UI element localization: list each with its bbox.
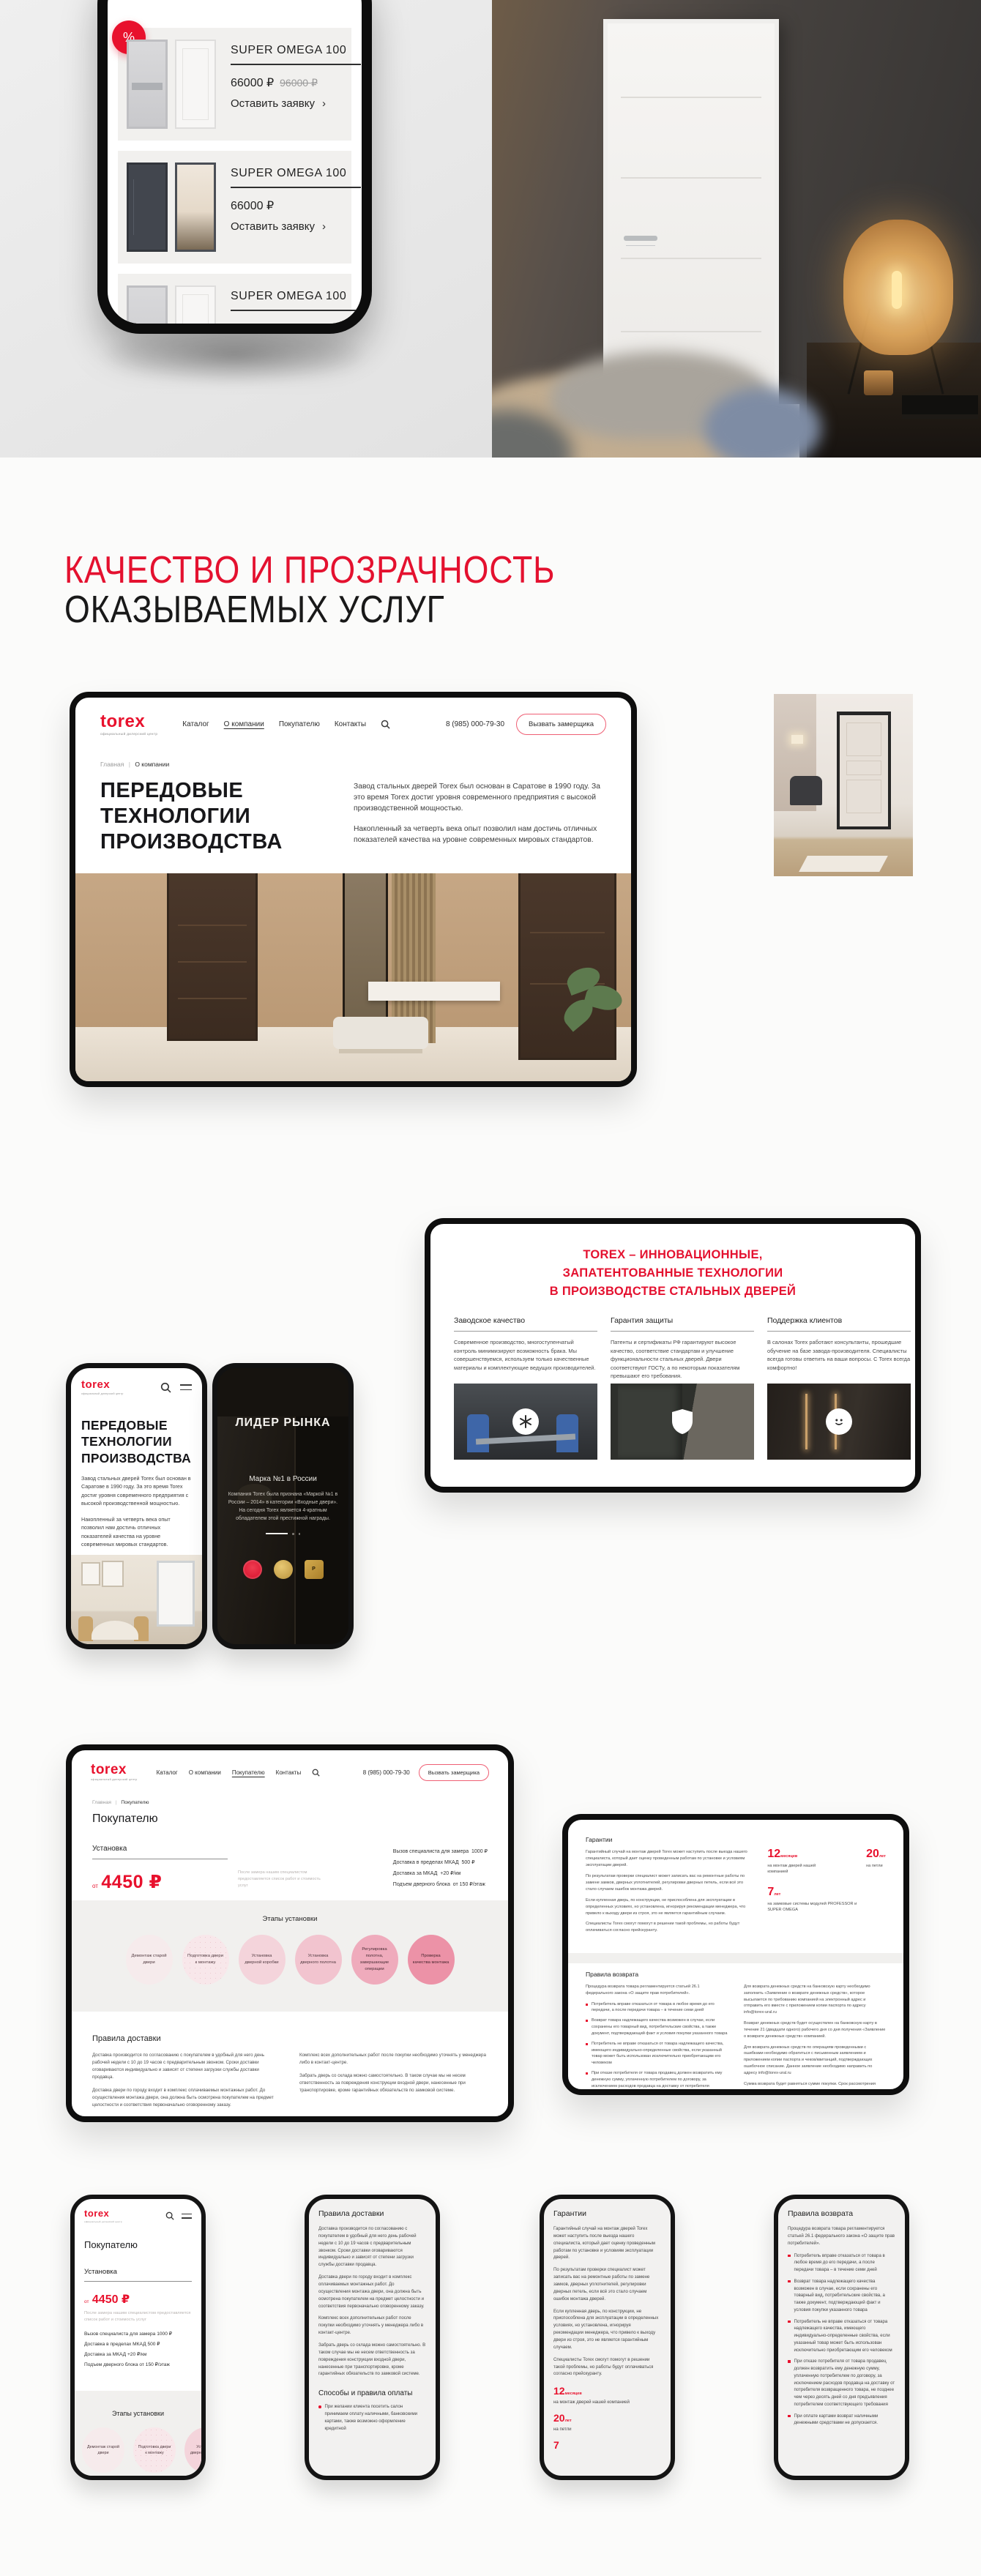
hamburger-icon[interactable] [180,1384,192,1390]
nav-item-contacts[interactable]: Контакты [335,720,366,728]
browser-mockup-warranty: Гарантии Гарантийный случай на монтаж дв… [562,1814,909,2095]
breadcrumb: Главная | О компании [100,761,606,768]
about-title: ПЕРЕДОВЫЕ ТЕХНОЛОГИИ ПРОИЗВОДСТВА [100,778,283,856]
warranty-paragraph: Если купленная дверь, по конструкции, не… [586,1897,748,1917]
phone-mockup-buyer: torex официальный дилерский центр Покупа… [70,2195,206,2480]
browser-mockup-buyer: torex официальный дилерский центр Катало… [66,1744,514,2122]
nav-item-buyer[interactable]: Покупателю [279,720,320,728]
column-heading: Заводское качество [454,1316,597,1325]
phone-mockup-leader: ЛИДЕР РЫНКА Марка №1 в России Компания T… [212,1363,354,1649]
nav-item-about[interactable]: О компании [189,1769,221,1776]
award-badges: Р [217,1560,348,1579]
returns-paragraph: Возврат денежных средств будет осуществл… [744,2020,886,2039]
fee-row: Доставка за МКАД +20 ₽/км [393,1868,488,1879]
fee-row: Подъем дверного блока от 150 ₽/этаж [84,2360,192,2370]
section-heading: КАЧЕСТВО И ПРОЗРАЧНОСТЬ ОКАЗЫВАЕМЫХ УСЛУ… [64,550,635,630]
step-circle-1: Демонтаж старой двери [126,1935,173,1985]
search-icon[interactable] [160,1382,171,1393]
search-icon[interactable] [312,1769,320,1777]
warranty-title: Гарантии [553,2209,661,2218]
product-images [127,163,220,252]
delivery-paragraph: Доставка двери по городу входит в компле… [318,2274,426,2310]
step-circle-3: Установка дверной коробки [239,1935,286,1985]
leader-subtitle: Марка №1 в России [217,1475,348,1483]
divider [454,1331,597,1332]
breadcrumb-current: Покупателю [121,1800,149,1805]
delivery-heading: Правила доставки [92,2034,488,2043]
product-cta[interactable]: Оставить заявку › [231,220,361,233]
logo-subtitle: официальный дилерский центр [100,732,157,736]
phone-mockup-returns: Правила возврата Процедура возврата това… [774,2195,909,2480]
lamp-bulb [892,271,902,309]
steps-section: Этапы установки Демонтаж старой двери По… [75,2391,201,2476]
factory-photo [454,1384,597,1460]
torex-logo[interactable]: torex официальный дилерский центр [81,1380,124,1395]
nav-item-buyer[interactable]: Покупателю [232,1769,265,1776]
asterisk-icon [512,1408,539,1435]
award-badge-mark1-icon [243,1560,262,1579]
breadcrumb-home[interactable]: Главная [100,761,124,768]
logo-subtitle: официальный дилерский центр [84,2220,122,2223]
console-shelf [368,982,500,1001]
returns-bullet: При отказе потребителя от товара продаве… [586,2070,728,2095]
steps-title: Этапы установки [75,2391,201,2417]
door-image-closed [127,40,168,129]
phone-about-paragraph-1: Завод стальных дверей Torex был основан … [81,1474,192,1508]
stat-20-years: 20лет на петли [553,2412,661,2432]
delivery-section: Правила доставки Доставка производится п… [92,2034,488,2115]
award-badge-100best-icon: Р [305,1560,324,1579]
delivery-title: Правила доставки [318,2209,426,2218]
returns-heading: Правила возврата [586,1971,886,1978]
payment-bullet: При желании клиента посетить салон прини… [318,2403,426,2432]
steps-section: Этапы установки Демонтаж старой двери По… [72,1900,508,2012]
bench [333,1017,428,1049]
bullet-square-icon [788,2321,791,2323]
entrance-door [837,712,891,829]
install-price: от 4450 ₽ [84,2292,192,2307]
returns-bullet: Потребитель вправе отказаться от товара … [586,2001,728,2015]
bullet-square-icon [788,2255,791,2258]
product-card: SUPER OMEGA 100 [118,274,351,324]
side-interior-photo [774,694,913,876]
divider [231,187,361,188]
logo-text: torex [100,714,157,730]
product-price: 66000 ₽ [231,200,274,212]
delivery-paragraph: Доставка двери по городу входит в компле… [92,2087,280,2109]
product-price: 66000 ₽ [231,77,274,89]
column-text: Современное производство, многоступенчат… [454,1338,597,1381]
header-phone[interactable]: 8 (985) 000-79-30 [446,720,504,728]
divider [92,1859,228,1859]
returns-paragraph: Для возврата денежных средств на банковс… [744,1984,886,2016]
smile-icon [826,1408,852,1435]
breadcrumb-current: О компании [135,761,169,768]
column-factory-quality: Заводское качество Современное производс… [454,1316,597,1460]
torex-logo[interactable]: torex официальный дилерский центр [100,714,157,736]
dining-table [92,1621,138,1640]
shield-icon [671,1408,693,1435]
door-image-closed [127,285,168,324]
white-door [157,1561,195,1627]
product-title: SUPER OMEGA 100 [231,167,361,180]
product-images [127,285,220,324]
phone-mockup-about: torex официальный дилерский центр ПЕРЕДО… [66,1363,207,1649]
hero-interior-photo [75,873,631,1081]
returns-intro: Процедура возврата товара регламентирует… [586,1984,728,1997]
delivery-paragraph: Доставка производится по согласованию с … [92,2052,280,2081]
divider [231,310,361,311]
fee-row: Подъем дверного блока от 150 ₽/этаж [393,1879,488,1890]
returns-bullet: При отказе потребителя от товара продаве… [788,2358,895,2408]
innovations-title: TOREX – ИННОВАЦИОННЫЕ, ЗАПАТЕНТОВАННЫЕ Т… [430,1246,915,1300]
award-badge-medal-icon [274,1560,293,1579]
product-title: SUPER OMEGA 100 [231,290,361,303]
column-heading: Поддержка клиентов [767,1316,911,1325]
returns-paragraph: Сумма возврата будет равняться сумме пок… [744,2081,886,2095]
stat-12-months: 12месяцев на монтаж дверей нашей компани… [553,2385,661,2405]
leader-text: Компания Torex была признана «Маркой №1 … [226,1490,340,1523]
hamburger-icon[interactable] [182,2214,192,2219]
bullet-square-icon [788,2360,791,2363]
install-note: После замера нашим специалистом предоста… [84,2310,192,2324]
returns-bullet: Потребитель не вправе отказаться от това… [586,2041,728,2067]
rug [799,856,888,872]
warranty-paragraph: По результатам проверки специалист может… [553,2266,661,2302]
bullet-square-icon [586,2020,588,2022]
call-measurer-button[interactable]: Вызвать замерщика [419,1764,489,1781]
install-heading: Установка [84,2268,192,2276]
stat-20-years: 20лет на петли [866,1848,886,1875]
nav-item-catalog[interactable]: Каталог [182,720,209,728]
torex-logo[interactable]: torex официальный дилерский центр [84,2209,122,2223]
browser-mockup-innovations: TOREX – ИННОВАЦИОННЫЕ, ЗАПАТЕНТОВАННЫЕ Т… [425,1218,921,1493]
warranty-paragraph: По результатам проверки специалист может… [586,1873,748,1893]
breadcrumb-home[interactable]: Главная [92,1800,111,1805]
payment-heading: Способы и правила оплаты [318,2389,426,2397]
product-cta-label: Оставить заявку [231,97,315,110]
product-cta[interactable]: Оставить заявку › [231,97,361,110]
leader-title: ЛИДЕР РЫНКА [217,1416,348,1430]
search-icon[interactable] [165,2211,174,2220]
fee-row: Вызов специалиста для замера 1000 ₽ [84,2329,192,2340]
product-old-price: 96000 ₽ [280,77,318,89]
plant [559,961,625,1056]
nav-item-about[interactable]: О компании [224,720,264,728]
fee-row: Вызов специалиста для замера 1000 ₽ [393,1846,488,1857]
column-warranty: Гарантия защиты Патенты и сертификаты РФ… [611,1316,754,1460]
divider [611,1331,754,1332]
stat-7-years: 7 [553,2439,661,2452]
fee-row: Доставка за МКАД +20 ₽/км [84,2350,192,2360]
returns-intro: Процедура возврата товара регламентирует… [788,2225,895,2247]
warranty-heading: Гарантии [586,1836,748,1843]
bullet-square-icon [788,2415,791,2418]
returns-title: Правила возврата [788,2209,895,2218]
step-circle-2: Подготовка двери к монтажу [133,2427,176,2473]
delivery-paragraph: Комплекс всех дополнительных работ после… [299,2052,488,2067]
entrance-door [169,873,255,1039]
logo-text: torex [81,1380,124,1390]
bed [492,344,873,458]
bullet-square-icon [586,2004,588,2006]
column-text: Патенты и сертификаты РФ гарантируют выс… [611,1338,754,1381]
chevron-right-icon: › [322,220,326,233]
phone-about-title: ПЕРЕДОВЫЕ ТЕХНОЛОГИИ ПРОИЗВОДСТВА [81,1417,192,1467]
returns-bullet: При оплате картами возврат наличными ден… [788,2413,895,2427]
breadcrumb-separator: | [116,1800,117,1805]
product-card: SUPER OMEGA 100 66000 ₽ Оставить заявку … [118,151,351,264]
showroom-photo [767,1384,911,1460]
delivery-paragraph: Забрать дверь со склада можно самостояте… [299,2072,488,2094]
armchair [790,776,822,805]
returns-section: Правила возврата Процедура возврата това… [586,1971,886,2095]
bullet-dot-icon [318,2405,321,2408]
returns-bullet: Возврат товара надлежащего качества возм… [788,2278,895,2314]
returns-bullet: Потребитель вправе отказаться от товара … [788,2252,895,2274]
phone-mockup-delivery: Правила доставки Доставка производится п… [305,2195,440,2480]
delivery-paragraph: Доставка производится по согласованию с … [318,2225,426,2269]
step-circle-3: Установка дверной коробки [184,2427,201,2473]
phone-about-paragraph-2: Накопленный за четверть века опыт позвол… [81,1515,192,1549]
column-support: Поддержка клиентов В салонах Torex работ… [767,1316,911,1460]
steps-title: Этапы установки [72,1900,508,1923]
stat-7-years: 7лет на замковые системы модулей PROFESS… [767,1886,886,1914]
install-heading: Установка [92,1845,228,1853]
pillow-blue [704,388,821,458]
bedroom-photo [492,0,981,458]
warranty-paragraph: Специалисты Torex смогут помогут в решен… [586,1921,748,1934]
about-paragraph-1: Завод стальных дверей Torex был основан … [354,781,606,815]
product-card: % SUPER OMEGA 100 66000 ₽96000 ₽ Оставит… [118,28,351,141]
chevron-right-icon: › [322,97,326,110]
phone-screen: % SUPER OMEGA 100 66000 ₽96000 ₽ Оставит… [108,0,362,324]
door-groove [621,97,761,98]
door-groove [621,331,761,332]
step-circle-2: Подготовка двери к монтажу [182,1935,229,1985]
dining-room-photo [71,1555,202,1644]
books-stack [902,395,978,414]
torex-logo[interactable]: torex официальный дилерский центр [91,1763,138,1781]
phone-mockup-catalog: % SUPER OMEGA 100 66000 ₽96000 ₽ Оставит… [97,0,372,334]
bullet-square-icon [586,2072,588,2075]
nav-item-catalog[interactable]: Каталог [157,1769,178,1776]
fee-list: Вызов специалиста для замера 1000 ₽ Дост… [393,1845,488,1893]
bullet-square-icon [586,2043,588,2045]
stat-12-months: 12месяцев на монтаж дверей нашей компани… [767,1848,824,1875]
portfolio-page: % SUPER OMEGA 100 66000 ₽96000 ₽ Оставит… [0,0,981,2576]
header-phone[interactable]: 8 (985) 000-79-30 [363,1769,410,1776]
phone-mockup-warranty: Гарантии Гарантийный случай на монтаж дв… [540,2195,675,2480]
nav-item-contacts[interactable]: Контакты [276,1769,302,1776]
delivery-paragraph: Забрать дверь со склада можно самостояте… [318,2342,426,2378]
door-groove [621,258,761,259]
call-measurer-button[interactable]: Вызвать замерщика [516,714,606,735]
door-image-open [175,163,216,252]
breadcrumb-separator: | [129,761,130,768]
column-heading: Гарантия защиты [611,1316,754,1325]
door-photo [611,1384,754,1460]
buyer-title: Покупателю [92,1812,508,1826]
step-circle-6: Проверка качества монтажа [408,1935,455,1985]
logo-text: torex [84,2209,122,2218]
logo-subtitle: официальный дилерский центр [91,1778,138,1781]
section-divider [568,1953,903,1963]
door-groove [621,177,761,179]
column-text: В салонах Torex работают консультанты, п… [767,1338,911,1381]
warranty-paragraph: Гарантийный случай на монтаж дверей Tore… [586,1849,748,1869]
door-image-open [175,40,216,129]
returns-bullet: Возврат товара надлежащего качества возм… [586,2017,728,2036]
breadcrumb: Главная | Покупателю [92,1800,508,1805]
fee-row: Доставка в пределах МКАД 500 ₽ [393,1857,488,1868]
delivery-paragraph: Комплекс всех дополнительных работ после… [318,2315,426,2337]
product-images [127,40,220,129]
product-cta-label: Оставить заявку [231,220,315,233]
section-heading-line1: КАЧЕСТВО И ПРОЗРАЧНОСТЬ [64,550,555,590]
step-circle-5: Регулировка полотна, завершающие операци… [351,1935,398,1985]
step-circle-1: Демонтаж старой двери [82,2427,124,2473]
fee-list: Вызов специалиста для замера 1000 ₽ Дост… [84,2329,192,2370]
wall-lamp [791,735,803,744]
door-handle [624,236,657,241]
install-price: от 4450 ₽ [92,1871,228,1893]
divider [767,1331,911,1332]
door-image-open [175,285,216,324]
browser-mockup-about: torex официальный дилерский центр Катало… [70,692,637,1087]
logo-text: torex [91,1763,138,1776]
section-heading-line2: ОКАЗЫВАЕМЫХ УСЛУГ [64,590,445,630]
returns-bullet: Потребитель не вправе отказаться от това… [788,2318,895,2354]
carousel-progress[interactable] [217,1533,348,1535]
warranty-paragraph: Гарантийный случай на монтаж дверей Tore… [553,2225,661,2261]
divider [84,2281,192,2282]
bullet-square-icon [788,2280,791,2283]
returns-paragraph: Для возврата денежных средств по операци… [744,2045,886,2077]
product-title: SUPER OMEGA 100 [231,44,361,57]
search-icon[interactable] [381,720,390,729]
phone-buyer-title: Покупателю [84,2239,192,2250]
divider [231,64,361,65]
install-note: После замера нашим специалистом предоста… [238,1870,324,1893]
step-circle-4: Установка дверного полотна [295,1935,342,1985]
about-paragraph-2: Накопленный за четверть века опыт позвол… [354,824,606,846]
warranty-paragraph: Специалисты Torex смогут помогут в решен… [553,2356,661,2378]
logo-subtitle: официальный дилерский центр [81,1392,124,1395]
door-image-closed [127,163,168,252]
warranty-paragraph: Если купленная дверь, по конструкции, не… [553,2308,661,2351]
fee-row: Доставка в пределах МКАД 500 ₽ [84,2340,192,2350]
